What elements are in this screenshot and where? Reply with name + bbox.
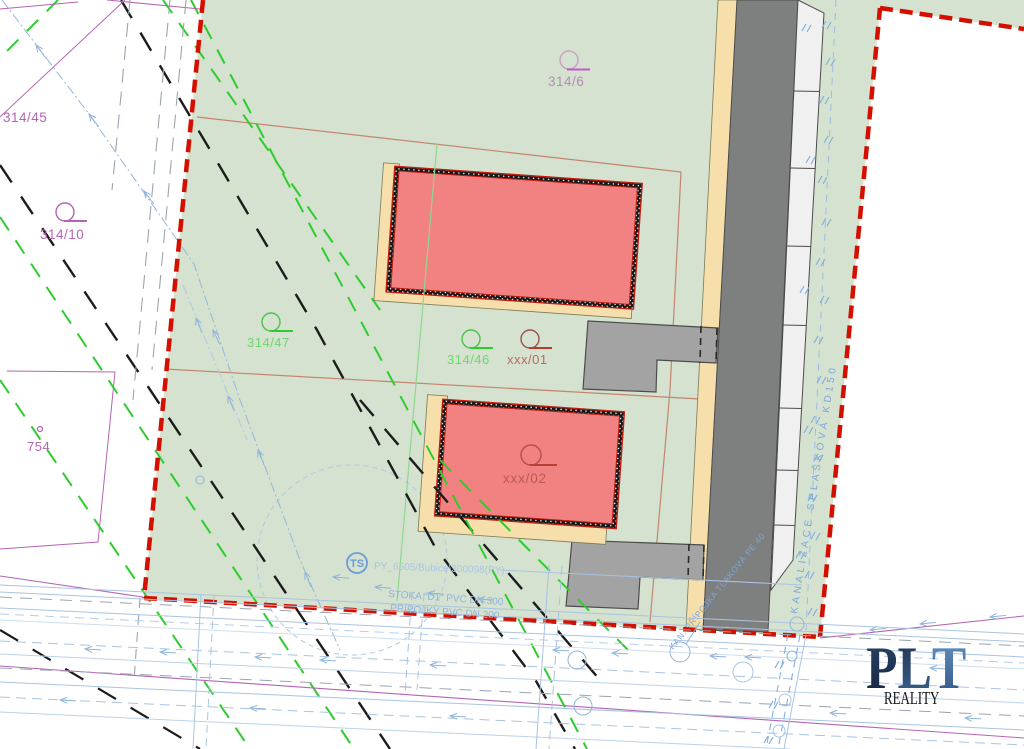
svg-text:TS: TS [350, 558, 364, 570]
svg-text:754: 754 [27, 439, 50, 454]
svg-text:314/47: 314/47 [247, 335, 290, 350]
svg-text:REALITY: REALITY [884, 689, 939, 709]
svg-text:314/46: 314/46 [447, 352, 490, 367]
svg-text:314/45: 314/45 [3, 110, 47, 125]
svg-text:xxx/01: xxx/01 [507, 352, 548, 367]
svg-text:xxx/02: xxx/02 [503, 471, 547, 486]
svg-text:314/10: 314/10 [40, 227, 84, 242]
svg-text:314/6: 314/6 [548, 74, 584, 89]
